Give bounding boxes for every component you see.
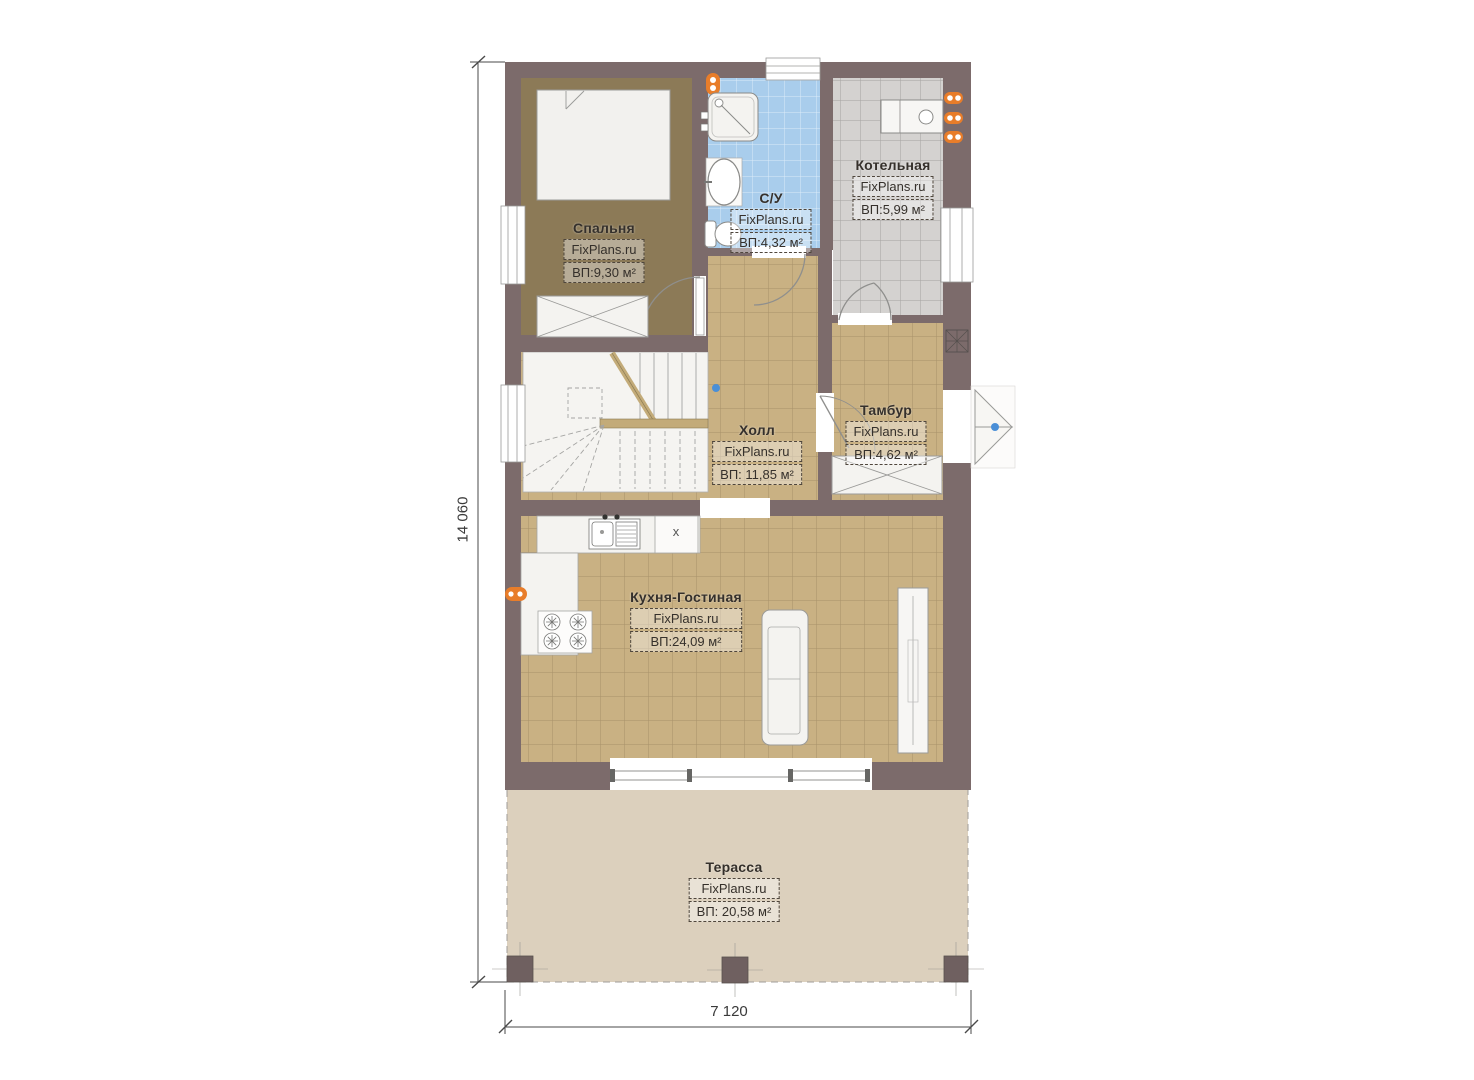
tall-cabinet-icon: [898, 588, 928, 753]
wall-hall-vestibule: [818, 250, 832, 505]
area-badge: ВП:4,32 м²: [730, 232, 811, 253]
brand-badge: FixPlans.ru: [845, 421, 926, 442]
area-badge: ВП:4,62 м²: [845, 444, 926, 465]
room-label-bathroom: С/У FixPlans.ru ВП:4,32 м²: [730, 190, 811, 253]
entrance-marker-dot: [991, 423, 999, 431]
window-top: [766, 58, 820, 80]
room-label-bedroom: Спальня FixPlans.ru ВП:9,30 м²: [563, 220, 644, 283]
stove-icon: [538, 611, 592, 653]
opening-boiler-door: [838, 313, 892, 325]
area-badge: ВП:5,99 м²: [852, 199, 933, 220]
entrance-door: [971, 386, 1015, 468]
area-badge: ВП: 11,85 м²: [712, 464, 802, 485]
stair-landing-edge: [600, 419, 708, 428]
room-label-terrace: Терасса FixPlans.ru ВП: 20,58 м²: [689, 859, 780, 922]
kitchen-sink-icon: [589, 514, 640, 549]
opening-vestibule-door: [816, 393, 834, 452]
terrace-post: [722, 957, 748, 983]
dimension-width-label: 7 120: [710, 1003, 748, 1020]
window-left-bedroom: [501, 206, 525, 284]
room-label-boiler: Котельная FixPlans.ru ВП:5,99 м²: [852, 157, 933, 220]
brand-badge: FixPlans.ru: [563, 239, 644, 260]
radiator-icons: [944, 92, 963, 143]
brand-badge: FixPlans.ru: [852, 176, 933, 197]
room-name: Кухня-Гостиная: [630, 589, 742, 605]
opening-hall-kitchen: [700, 498, 770, 518]
room-label-hall: Холл FixPlans.ru ВП: 11,85 м²: [712, 422, 802, 485]
wall-top: [505, 62, 971, 78]
boiler-unit-icon: [881, 100, 943, 133]
dimension-height-label: 14 060: [455, 490, 472, 550]
floor-plan-page: Спальня FixPlans.ru ВП:9,30 м² С/У FixPl…: [0, 0, 1474, 1080]
wall-bedroom-bottom: [505, 335, 708, 352]
brand-badge: FixPlans.ru: [730, 209, 811, 230]
kitchen-radiator-icon: [505, 587, 527, 601]
room-name: Тамбур: [845, 402, 926, 418]
room-name: С/У: [730, 190, 811, 206]
chimney-flue-icon: [946, 330, 968, 352]
terrace-post: [944, 956, 968, 982]
brand-badge: FixPlans.ru: [630, 608, 742, 629]
shower-icon: [701, 93, 758, 141]
towel-radiator-icon: [706, 73, 720, 95]
room-label-kitchen-living: Кухня-Гостиная FixPlans.ru ВП:24,09 м²: [630, 589, 742, 652]
window-left-stairs: [501, 385, 525, 462]
stair-marker-dot: [712, 384, 720, 392]
wardrobe-icon: [537, 296, 648, 337]
area-badge: ВП: 20,58 м²: [689, 901, 780, 922]
room-name: Спальня: [563, 220, 644, 236]
room-name: Терасса: [689, 859, 780, 875]
area-badge: ВП:9,30 м²: [563, 262, 644, 283]
room-name: Котельная: [852, 157, 933, 173]
sofa-icon: [762, 610, 808, 745]
brand-badge: FixPlans.ru: [689, 878, 780, 899]
room-name: Холл: [712, 422, 802, 438]
wall-bathroom-boiler: [820, 78, 833, 250]
room-label-vestibule: Тамбур FixPlans.ru ВП:4,62 м²: [845, 402, 926, 465]
brand-badge: FixPlans.ru: [712, 441, 802, 462]
staircase: [523, 352, 720, 492]
dimension-line-height: [470, 56, 507, 988]
terrace-post: [507, 956, 533, 982]
bed-icon: [537, 90, 670, 200]
window-right-boiler: [941, 208, 973, 282]
area-badge: ВП:24,09 м²: [630, 631, 742, 652]
opening-entrance-door: [943, 390, 971, 463]
kitchen-appliance-mark: x: [673, 524, 680, 539]
